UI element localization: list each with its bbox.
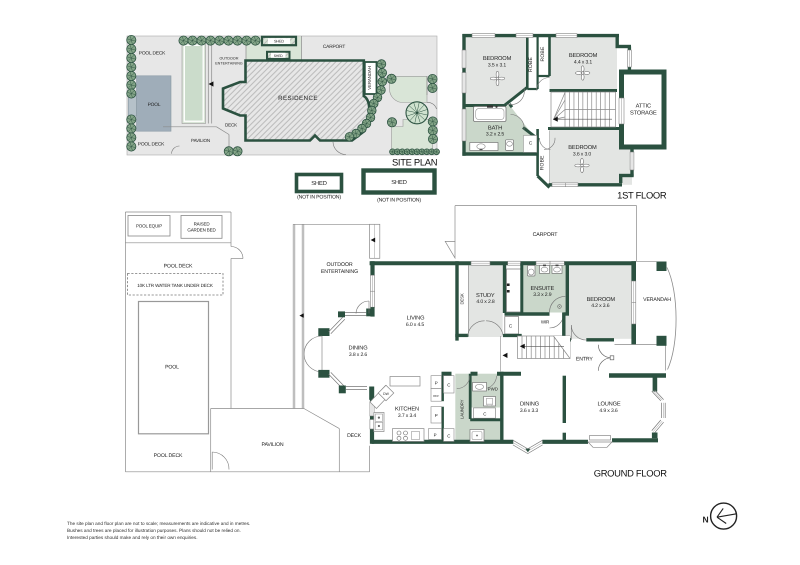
svg-text:KITCHEN: KITCHEN bbox=[395, 407, 419, 413]
svg-text:ENTERTAINING: ENTERTAINING bbox=[215, 61, 243, 65]
svg-text:SITE PLAN: SITE PLAN bbox=[392, 157, 437, 168]
svg-text:3.7 x 3.4: 3.7 x 3.4 bbox=[398, 413, 417, 419]
svg-text:3.5 x 3.1: 3.5 x 3.1 bbox=[488, 62, 507, 68]
svg-text:DECK: DECK bbox=[347, 433, 362, 439]
svg-text:3.2 x 2.5: 3.2 x 2.5 bbox=[486, 132, 505, 138]
svg-text:PWD: PWD bbox=[488, 387, 498, 392]
svg-text:DESK: DESK bbox=[459, 293, 464, 304]
svg-text:1ST FLOOR: 1ST FLOOR bbox=[617, 190, 667, 201]
svg-text:3.6 x 3.3: 3.6 x 3.3 bbox=[520, 408, 539, 414]
svg-text:VERANDAH: VERANDAH bbox=[643, 297, 671, 303]
svg-text:ROBE: ROBE bbox=[539, 155, 545, 170]
svg-text:VERANDAH: VERANDAH bbox=[367, 66, 372, 90]
svg-text:C: C bbox=[447, 433, 450, 438]
svg-text:Bushes and trees are placed fo: Bushes and trees are placed for illustra… bbox=[67, 528, 241, 533]
svg-text:10K LTR WATER TANK UNDER DECK: 10K LTR WATER TANK UNDER DECK bbox=[137, 283, 214, 288]
svg-text:LAUNDRY: LAUNDRY bbox=[459, 399, 464, 419]
svg-text:4.4 x 3.1: 4.4 x 3.1 bbox=[574, 59, 593, 65]
svg-text:4.0 x 2.8: 4.0 x 2.8 bbox=[476, 299, 495, 305]
svg-text:CARPORT: CARPORT bbox=[323, 44, 346, 50]
svg-text:P: P bbox=[435, 380, 438, 385]
svg-text:POOL DECK: POOL DECK bbox=[154, 453, 183, 459]
svg-text:ATTIC: ATTIC bbox=[636, 103, 651, 109]
svg-text:LOUNGE: LOUNGE bbox=[597, 402, 620, 408]
svg-text:P: P bbox=[435, 413, 438, 418]
svg-text:The site plan and floor plan a: The site plan and floor plan are not to … bbox=[67, 521, 250, 526]
svg-text:PAVILION: PAVILION bbox=[262, 442, 284, 448]
svg-text:DW: DW bbox=[383, 392, 389, 396]
svg-text:ENTERTAINING: ENTERTAINING bbox=[321, 269, 358, 275]
svg-text:P: P bbox=[434, 432, 437, 437]
svg-text:POOL DECK: POOL DECK bbox=[164, 264, 193, 270]
svg-text:LIVING: LIVING bbox=[407, 316, 425, 322]
svg-text:ENTRY: ENTRY bbox=[576, 357, 593, 363]
svg-text:RESIDENCE: RESIDENCE bbox=[278, 95, 318, 102]
svg-text:OUTDOOR: OUTDOOR bbox=[326, 262, 352, 268]
svg-text:BEDROOM: BEDROOM bbox=[587, 297, 616, 303]
svg-text:BEDROOM: BEDROOM bbox=[568, 145, 597, 151]
svg-text:SHED: SHED bbox=[274, 40, 284, 44]
svg-text:3.3 x 2.9: 3.3 x 2.9 bbox=[533, 292, 552, 298]
svg-text:SHED: SHED bbox=[274, 54, 284, 58]
svg-text:ENSUITE: ENSUITE bbox=[530, 286, 554, 292]
svg-text:(NOT IN POSITION): (NOT IN POSITION) bbox=[297, 194, 341, 200]
svg-text:SHED: SHED bbox=[391, 179, 407, 186]
svg-text:POOL DECK: POOL DECK bbox=[138, 142, 165, 148]
svg-text:(NOT IN POSITION): (NOT IN POSITION) bbox=[377, 197, 421, 203]
svg-text:3.8 x 2.6: 3.8 x 2.6 bbox=[349, 352, 368, 358]
svg-text:N: N bbox=[703, 515, 709, 525]
svg-text:ROBE: ROBE bbox=[528, 57, 534, 72]
svg-text:POOL: POOL bbox=[148, 102, 161, 108]
svg-text:GARDEN BED: GARDEN BED bbox=[187, 227, 216, 232]
svg-text:GROUND FLOOR: GROUND FLOOR bbox=[594, 468, 667, 479]
svg-text:4.9 x 3.6: 4.9 x 3.6 bbox=[599, 408, 618, 414]
svg-text:OUTDOOR: OUTDOOR bbox=[219, 56, 238, 60]
svg-text:6.0 x 4.5: 6.0 x 4.5 bbox=[406, 322, 425, 328]
svg-text:BEDROOM: BEDROOM bbox=[483, 56, 512, 62]
svg-text:ROBE: ROBE bbox=[540, 46, 546, 61]
svg-text:DINING: DINING bbox=[520, 402, 539, 408]
svg-text:DECK: DECK bbox=[225, 123, 237, 128]
svg-text:STUDY: STUDY bbox=[476, 293, 495, 299]
svg-text:CARPORT: CARPORT bbox=[533, 232, 559, 238]
svg-text:PAVILION: PAVILION bbox=[191, 138, 210, 143]
svg-text:POOL DECK: POOL DECK bbox=[139, 51, 166, 57]
svg-text:POOL: POOL bbox=[165, 365, 179, 371]
svg-text:REF: REF bbox=[433, 394, 439, 398]
svg-text:STORAGE: STORAGE bbox=[630, 110, 657, 116]
svg-text:Interested parties should make: Interested parties should make and rely … bbox=[67, 535, 198, 540]
svg-text:C: C bbox=[447, 383, 450, 388]
svg-text:RAISED: RAISED bbox=[194, 221, 211, 226]
svg-text:DINING: DINING bbox=[348, 346, 367, 352]
svg-text:POOL EQUIP: POOL EQUIP bbox=[136, 224, 162, 229]
svg-text:BEDROOM: BEDROOM bbox=[569, 53, 598, 59]
svg-text:SHED: SHED bbox=[311, 180, 327, 187]
svg-text:3.6 x 3.0: 3.6 x 3.0 bbox=[573, 151, 592, 157]
svg-text:C: C bbox=[483, 411, 486, 416]
svg-text:4.2 x 3.6: 4.2 x 3.6 bbox=[591, 303, 610, 309]
svg-text:WIR: WIR bbox=[541, 320, 550, 325]
